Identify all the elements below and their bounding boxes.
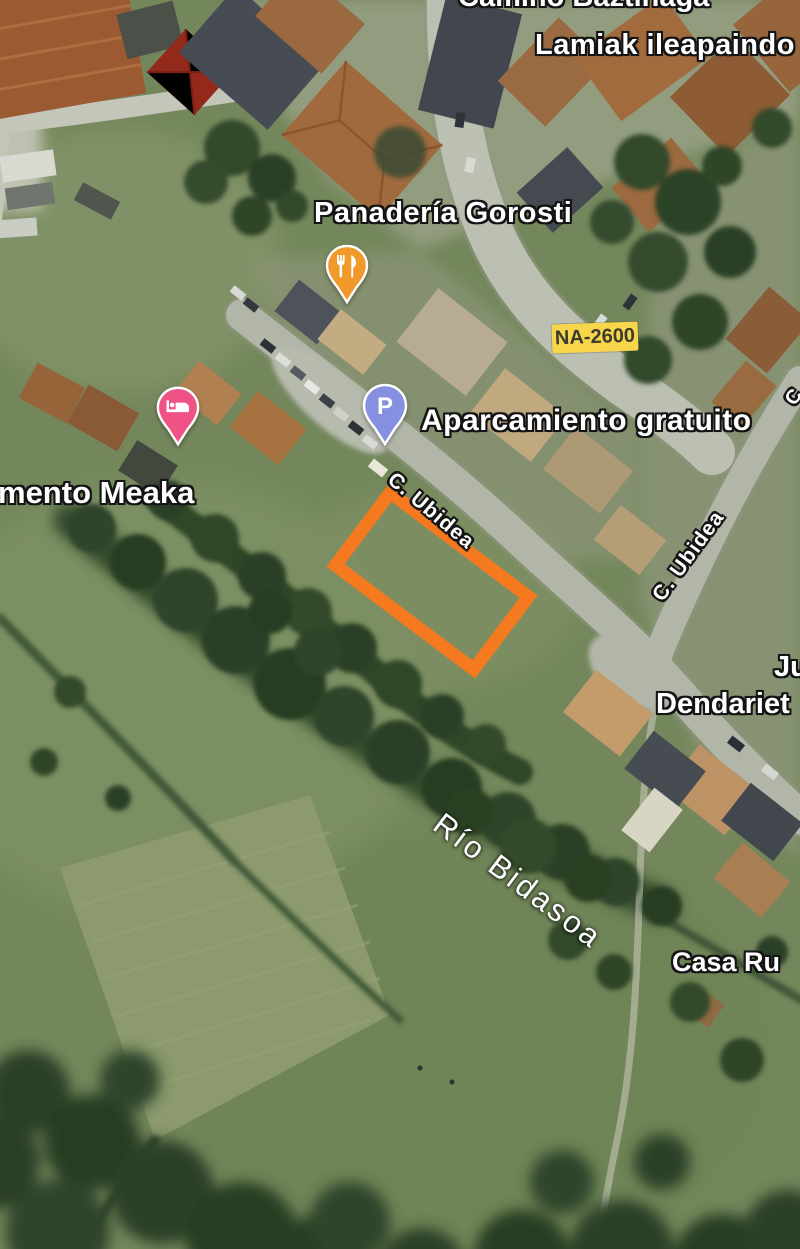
place-label-aparcamiento-gratuito[interactable]: Aparcamiento gratuito (421, 404, 752, 438)
road-label-camino-baztinaga: Camino Baztinaga (458, 0, 709, 14)
place-label-casa-ru[interactable]: Casa Ru (672, 947, 780, 978)
pin-shape (158, 388, 198, 445)
place-label-dendariet[interactable]: Dendariet (656, 688, 790, 721)
place-label-panaderia-gorosti[interactable]: Panadería Gorosti (314, 197, 572, 230)
place-label-lamiak[interactable]: Lamiak ileapaindo (535, 29, 795, 62)
map-canvas[interactable]: P Camino Baztinaga Lamiak ileapaindo Pan… (0, 0, 800, 1249)
place-label-meaka[interactable]: mento Meaka (0, 475, 194, 511)
route-badge-na2600: NA-2600 (552, 322, 639, 354)
parking-marker[interactable]: P (361, 382, 409, 448)
lodging-marker[interactable] (155, 385, 201, 448)
restaurant-marker[interactable] (324, 244, 370, 305)
satellite-imagery (0, 0, 800, 1249)
pin-shape (327, 246, 367, 302)
place-label-ju[interactable]: Ju (774, 651, 800, 684)
letter-p-icon: P (377, 393, 393, 420)
